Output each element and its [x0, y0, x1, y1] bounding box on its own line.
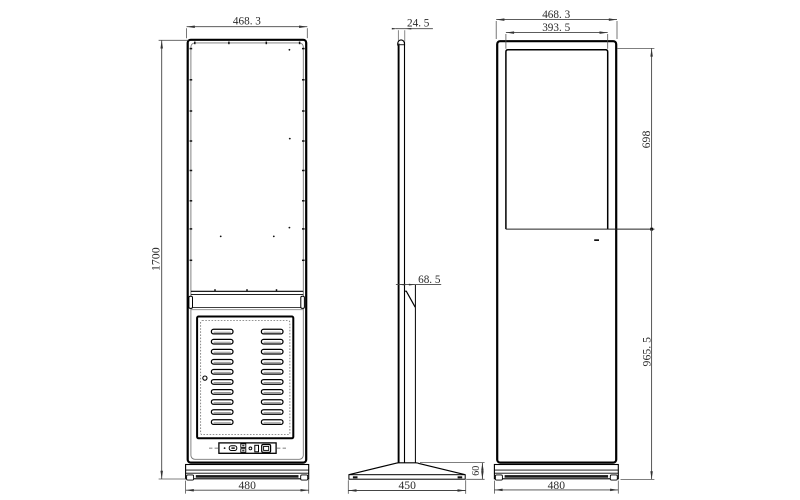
svg-text:480: 480 — [548, 479, 566, 492]
svg-text:450: 450 — [399, 479, 417, 492]
svg-text:468. 3: 468. 3 — [542, 9, 570, 21]
svg-text:24. 5: 24. 5 — [407, 17, 430, 29]
svg-text:393. 5: 393. 5 — [542, 22, 570, 34]
svg-text:468. 3: 468. 3 — [233, 16, 261, 28]
svg-text:60: 60 — [471, 466, 482, 476]
svg-text:480: 480 — [239, 479, 257, 492]
svg-text:965. 5: 965. 5 — [639, 337, 653, 367]
svg-text:1700: 1700 — [149, 247, 163, 271]
svg-text:698: 698 — [639, 131, 653, 149]
svg-text:68. 5: 68. 5 — [418, 274, 441, 286]
